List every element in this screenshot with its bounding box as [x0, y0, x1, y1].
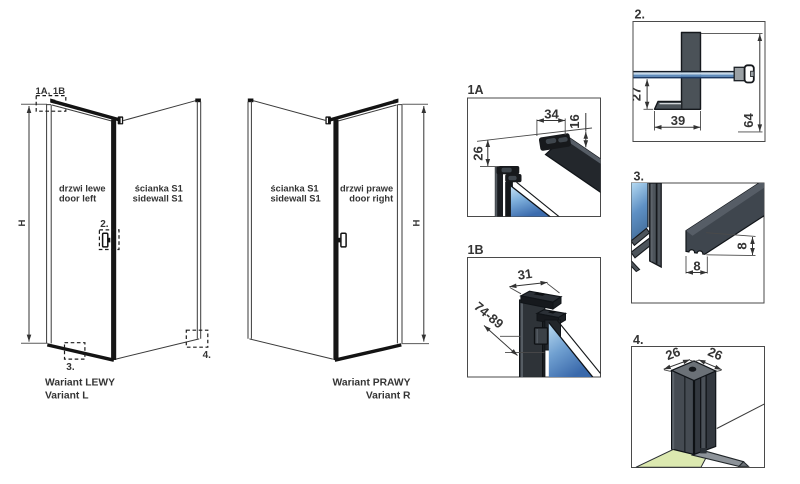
svg-text:door left: door left — [59, 194, 96, 204]
svg-text:1B: 1B — [468, 243, 484, 257]
svg-text:8: 8 — [693, 258, 700, 273]
svg-text:drzwi lewe: drzwi lewe — [59, 184, 106, 194]
svg-text:H: H — [412, 219, 423, 226]
svg-text:Wariant LEWY: Wariant LEWY — [45, 378, 115, 389]
svg-text:2.: 2. — [100, 219, 109, 230]
svg-text:3.: 3. — [634, 170, 644, 184]
svg-text:1A, 1B: 1A, 1B — [36, 86, 66, 97]
svg-text:34: 34 — [544, 106, 559, 121]
svg-text:sidewall S1: sidewall S1 — [133, 194, 183, 204]
svg-text:1A: 1A — [468, 83, 484, 97]
svg-text:ścianka S1: ścianka S1 — [271, 184, 319, 194]
svg-text:sidewall S1: sidewall S1 — [271, 194, 321, 204]
svg-text:64: 64 — [741, 113, 756, 128]
svg-text:31: 31 — [517, 266, 533, 283]
svg-text:39: 39 — [671, 113, 685, 128]
svg-text:16: 16 — [567, 114, 582, 128]
svg-text:3.: 3. — [66, 362, 75, 373]
svg-text:Wariant PRAWY: Wariant PRAWY — [333, 378, 411, 389]
svg-text:4.: 4. — [203, 350, 212, 361]
svg-text:H: H — [17, 219, 28, 226]
svg-text:2.: 2. — [635, 8, 645, 22]
svg-text:Variant R: Variant R — [366, 390, 411, 401]
svg-text:4.: 4. — [633, 333, 643, 347]
svg-text:8: 8 — [735, 242, 750, 249]
svg-text:26: 26 — [470, 146, 485, 160]
svg-text:door right: door right — [349, 194, 393, 204]
svg-text:ścianka S1: ścianka S1 — [135, 184, 183, 194]
svg-text:drzwi prawe: drzwi prawe — [340, 184, 393, 194]
svg-text:Variant L: Variant L — [45, 390, 89, 401]
